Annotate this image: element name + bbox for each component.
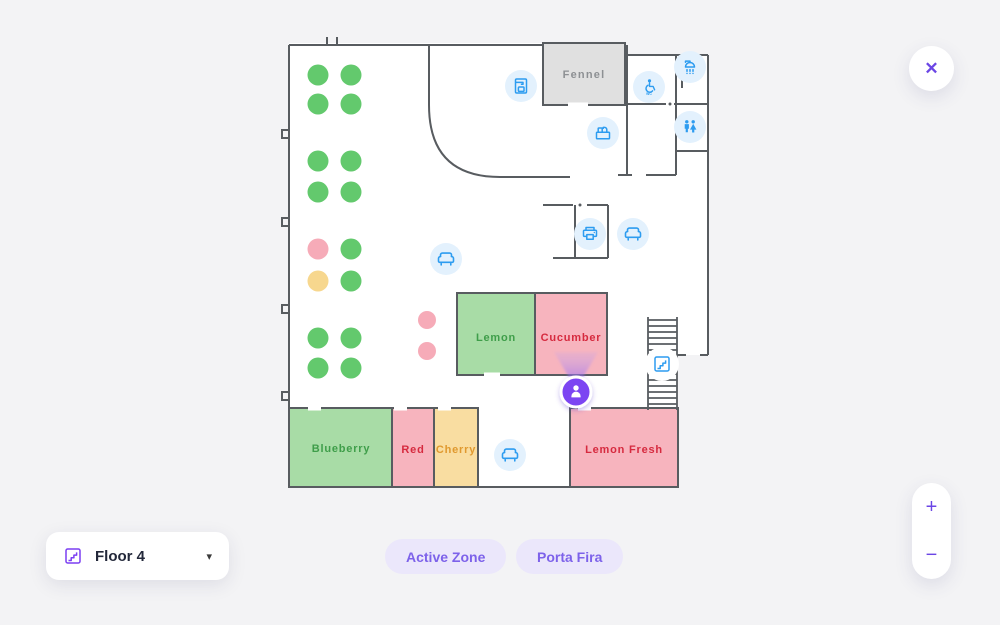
zoom-out-button[interactable]: −	[912, 531, 951, 579]
chevron-down-icon: ▾	[206, 550, 212, 563]
sofa-icon[interactable]	[494, 439, 526, 471]
desk-dot[interactable]	[341, 328, 362, 349]
badge-porta-fira[interactable]: Porta Fira	[516, 539, 623, 574]
room-label: Blueberry	[312, 443, 371, 455]
shower-icon[interactable]	[674, 51, 706, 83]
desk-dot[interactable]	[341, 182, 362, 203]
badge-active-zone[interactable]: Active Zone	[385, 539, 506, 574]
room-label: Red	[401, 444, 424, 456]
poi-halo	[494, 439, 526, 471]
sofa-icon[interactable]	[617, 218, 649, 250]
room-blueberry[interactable]: Blueberry	[289, 408, 392, 487]
desk-dot[interactable]	[308, 151, 329, 172]
room-lemon-fresh[interactable]: Lemon Fresh	[570, 408, 678, 487]
poi-halo	[587, 117, 619, 149]
close-icon: ✕	[924, 59, 938, 79]
room-red[interactable]: Red	[392, 408, 434, 487]
room-cherry[interactable]: Cherry	[434, 408, 478, 487]
desk-dot[interactable]	[341, 94, 362, 115]
printer-icon[interactable]	[574, 218, 606, 250]
seat-dot[interactable]	[418, 311, 436, 329]
desk-dot[interactable]	[308, 182, 329, 203]
desk-dot[interactable]	[341, 239, 362, 260]
floor-selector-label: Floor 4	[95, 548, 145, 565]
floor-stairs-icon	[63, 546, 83, 566]
desk-dot[interactable]	[341, 65, 362, 86]
room-label: Lemon	[476, 332, 516, 344]
sofa-icon[interactable]	[430, 243, 462, 275]
kitchen-icon[interactable]	[587, 117, 619, 149]
desk-dot[interactable]	[308, 239, 329, 260]
poi-halo	[674, 111, 706, 143]
desk-dot[interactable]	[308, 94, 329, 115]
poi-halo	[633, 71, 665, 103]
map-stage: WC Fennel Lemon Cucumber Blueberry Red C…	[0, 0, 1000, 625]
close-button[interactable]: ✕	[909, 46, 954, 91]
desk-dot[interactable]	[308, 65, 329, 86]
wc-icon[interactable]	[674, 111, 706, 143]
room-label: Cucumber	[541, 332, 602, 344]
poi-halo	[505, 70, 537, 102]
seat-dot[interactable]	[418, 342, 436, 360]
desk-dot[interactable]	[341, 358, 362, 379]
desk-dot[interactable]	[341, 151, 362, 172]
room-label: Cherry	[436, 444, 476, 456]
room-fennel[interactable]: Fennel	[543, 43, 625, 105]
desk-dot[interactable]	[308, 271, 329, 292]
user-location-marker	[561, 377, 591, 407]
room-lemon[interactable]: Lemon	[457, 293, 535, 375]
floor-selector[interactable]: Floor 4 ▾	[46, 532, 229, 580]
desk-dot[interactable]	[341, 271, 362, 292]
coffee-machine-icon[interactable]	[505, 70, 537, 102]
poi-halo	[617, 218, 649, 250]
zoom-controls: + −	[912, 483, 951, 579]
desk-dot[interactable]	[308, 328, 329, 349]
room-label: Lemon Fresh	[585, 444, 663, 456]
accessible-wc-icon[interactable]	[633, 71, 665, 103]
desk-dot[interactable]	[308, 358, 329, 379]
zoom-in-button[interactable]: +	[912, 483, 951, 531]
stairs-icon[interactable]	[645, 347, 679, 381]
room-label: Fennel	[563, 69, 606, 81]
poi-halo	[430, 243, 462, 275]
